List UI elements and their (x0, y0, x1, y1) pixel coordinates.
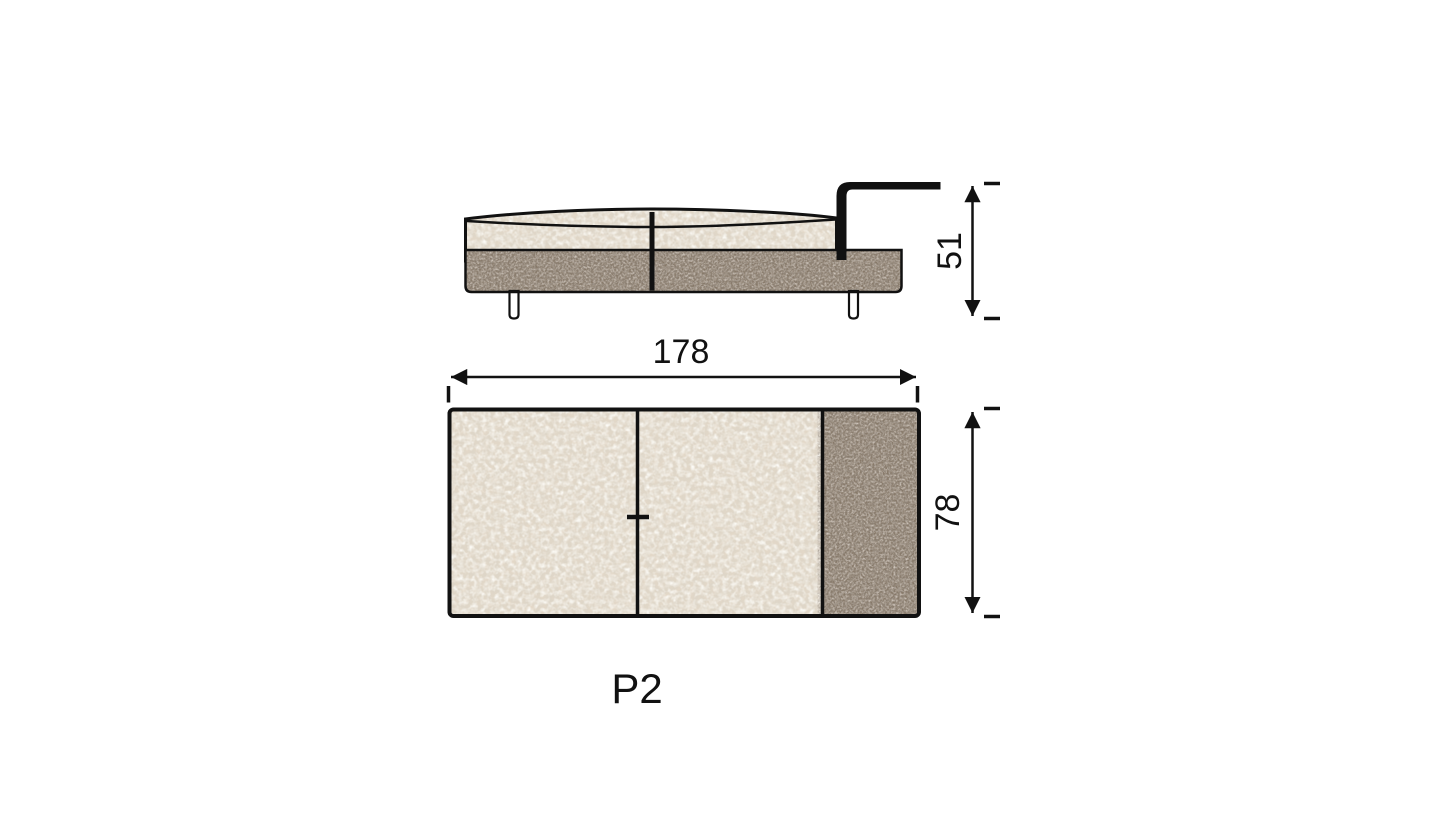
depth-dimension-label: 78 (929, 494, 967, 532)
depth-dimension: 78 (929, 409, 1000, 617)
side-leg-right (849, 291, 858, 319)
height-dimension: 51 (931, 184, 1000, 319)
side-view (460, 182, 941, 319)
width-dimension-label: 178 (653, 333, 710, 371)
side-leg-left (510, 291, 519, 319)
top-view (450, 410, 920, 617)
height-dimension-label: 51 (931, 232, 969, 270)
technical-drawing-canvas: 51 178 (0, 0, 1445, 813)
side-metal-arm-frame (837, 182, 941, 260)
top-leather-section (823, 410, 920, 617)
top-leather-grain-light (823, 410, 920, 617)
width-dimension: 178 (449, 333, 918, 403)
product-label: P2 (611, 665, 662, 712)
